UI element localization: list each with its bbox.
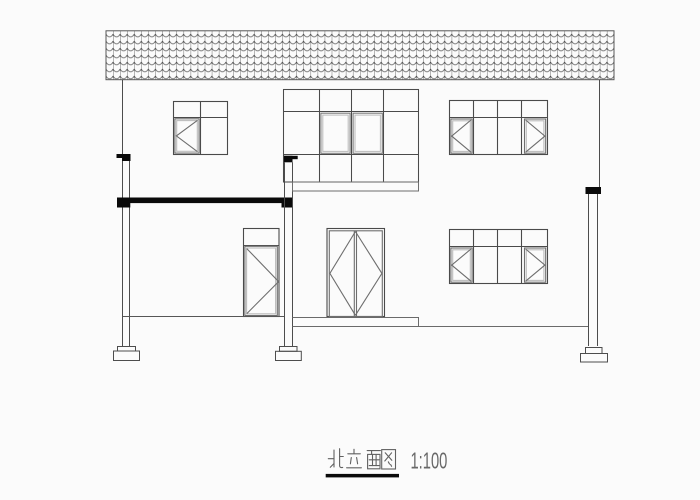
svg-text:1:100: 1:100: [411, 450, 448, 475]
